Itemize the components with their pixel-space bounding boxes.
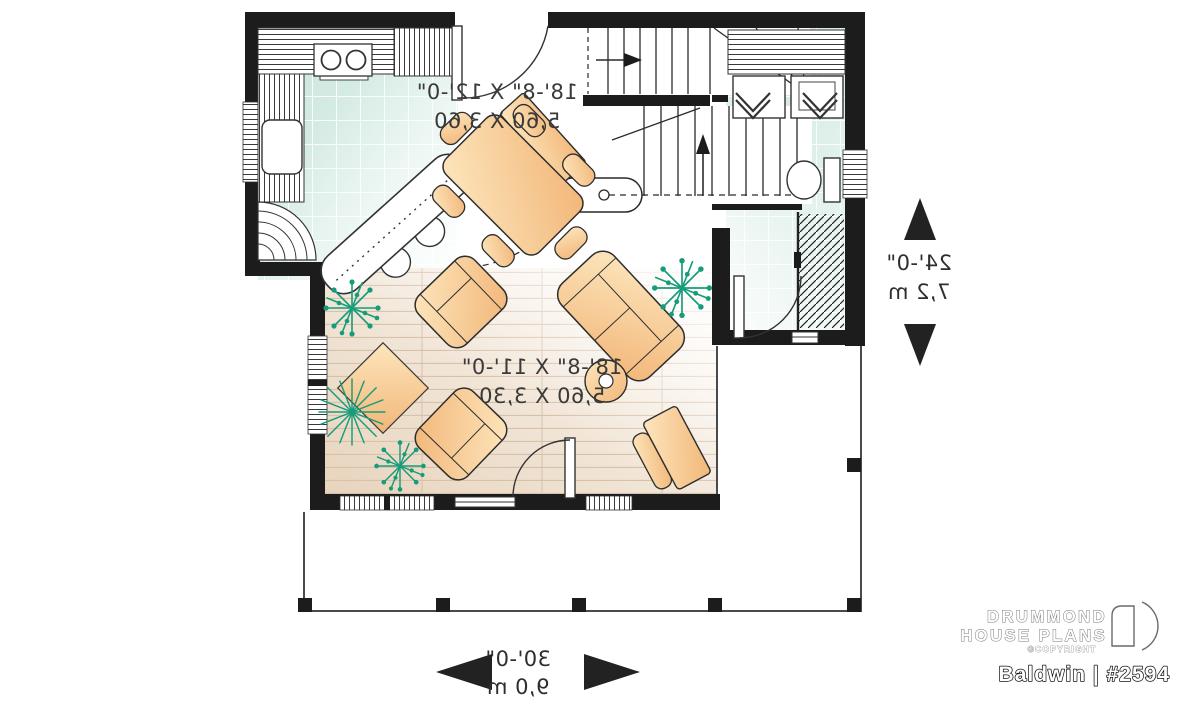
dining-kitchen-dimension-imperial: 18'-8" X 12'-0": [416, 80, 577, 104]
closet: [794, 212, 844, 330]
arrow-up-icon: [904, 198, 936, 240]
width-dimension: 30'-0" 9,0 m: [436, 647, 640, 699]
brand-name-line1: DRUMMOND: [987, 608, 1107, 626]
kitchen-counter-right: [394, 28, 452, 76]
width-metric: 9,0 m: [486, 675, 549, 699]
laundry-counter: [728, 30, 845, 74]
burner: [347, 51, 366, 70]
dining-kitchen-dimension-metric: 5,60 X 3,60: [434, 109, 561, 133]
plant-icon: [319, 379, 385, 445]
depth-imperial: 24'-0": [886, 251, 952, 275]
arrow-down-icon: [904, 324, 936, 366]
arrow-right-icon: [584, 654, 640, 690]
plan-name: Baldwin | #2594: [999, 663, 1170, 686]
floor-plan-canvas: 18'-8" X 12'-0" 5,60 X 3,60 18'-8" X 11'…: [0, 0, 1200, 711]
living-room-dimension-metric: 5,60 X 3,30: [479, 384, 606, 408]
arrow-left-icon: [436, 654, 492, 690]
toilet-tank: [824, 158, 840, 202]
depth-metric: 7,2 m: [887, 280, 950, 304]
drummond-logo-icon: [1112, 602, 1158, 650]
branding: DRUMMOND HOUSE PLANS ©COPYRIGHT Baldwin …: [960, 602, 1170, 686]
toilet-bowl: [787, 161, 821, 199]
living-room-dimension-imperial: 18'-8" X 11'-0": [461, 355, 622, 379]
width-imperial: 30'-0": [485, 647, 551, 671]
floor-plan-page: 18'-8" X 12'-0" 5,60 X 3,60 18'-8" X 11'…: [0, 0, 1200, 711]
refrigerator: [262, 120, 302, 174]
copyright-label: ©COPYRIGHT: [1028, 644, 1097, 654]
brand-name-line2: HOUSE PLANS: [960, 627, 1107, 645]
burner: [322, 51, 341, 70]
depth-dimension: 24'-0" 7,2 m: [886, 198, 952, 366]
